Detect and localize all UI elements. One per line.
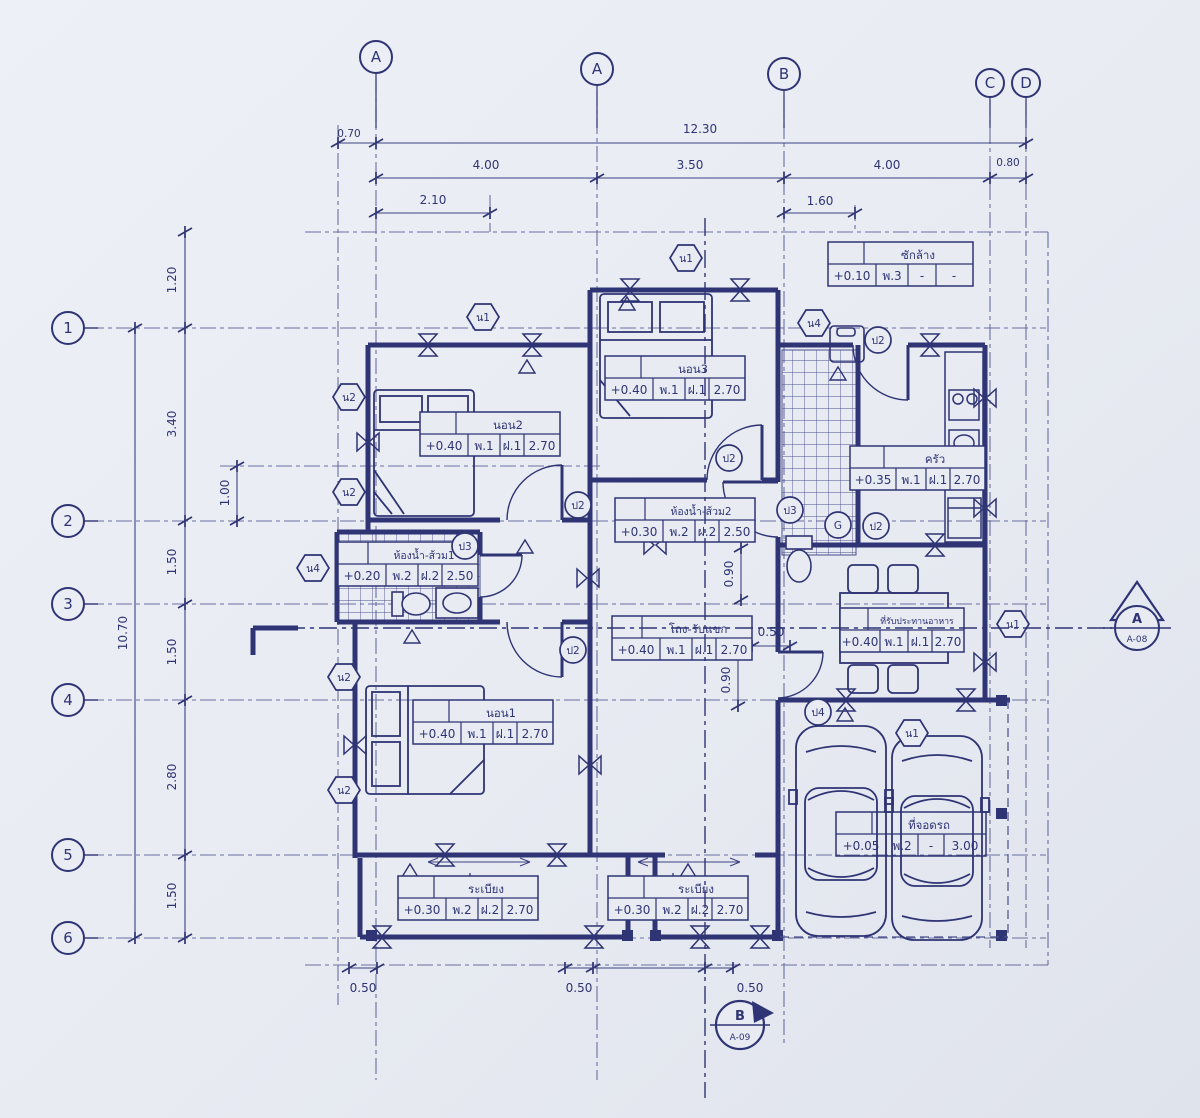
dim-l4: 1.50 — [165, 639, 179, 666]
marker-n2: น2 — [342, 487, 356, 499]
marker-n4: น4 — [807, 318, 821, 330]
room-name: ระเบียง — [678, 882, 714, 896]
marker-g-fixture: G — [834, 520, 842, 532]
room-name: ที่จอดรถ — [908, 817, 950, 832]
col-label-a2: A — [592, 60, 603, 78]
blueprint-page: A A B C D 1 2 3 4 5 6 — [0, 0, 1200, 1118]
room-name: ซักล้าง — [901, 248, 935, 262]
room-ceiling: - — [929, 839, 933, 853]
marker-n2: น2 — [337, 785, 351, 797]
room-name: ห้องน้ำ-ส้วม1 — [393, 548, 454, 562]
room-wall: พ.2 — [392, 569, 411, 583]
dim-top-a: 4.00 — [473, 158, 500, 172]
marker-p3: ป3 — [783, 505, 796, 517]
room-height: 2.70 — [507, 903, 534, 917]
room-wall: พ.2 — [452, 903, 471, 917]
room-level: +0.05 — [843, 839, 880, 853]
room-height: 2.70 — [954, 473, 981, 487]
row-label-4: 4 — [63, 691, 73, 709]
dim-b3: 0.50 — [737, 981, 764, 995]
marker-n2: น2 — [337, 672, 351, 684]
room-height: 2.70 — [714, 383, 741, 397]
dim-b2: 0.50 — [566, 981, 593, 995]
room-name: โถง-รับแขก — [669, 622, 728, 636]
room-label-bedroom2: นอน2 +0.40 พ.1 ฝ.1 2.70 — [420, 412, 560, 456]
room-label-terrace2: ระเบียง +0.30 พ.2 ฝ.2 2.70 — [608, 876, 748, 920]
section-a-letter: A — [1132, 612, 1142, 627]
room-ceiling: ฝ.1 — [929, 473, 947, 487]
row-label-1: 1 — [63, 319, 73, 337]
dim-top-b: 3.50 — [677, 158, 704, 172]
row-label-5: 5 — [63, 846, 73, 864]
col-label-a1: A — [371, 48, 382, 66]
room-height: 2.70 — [522, 727, 549, 741]
room-ceiling: ฝ.1 — [503, 439, 521, 453]
dim-top-d: 0.80 — [996, 157, 1019, 169]
room-ceiling: ฝ.2 — [421, 569, 439, 583]
room-wall: พ.1 — [659, 383, 678, 397]
dim-left-total: 10.70 — [116, 616, 130, 650]
room-name: นอน2 — [493, 418, 523, 432]
room-wall: พ.2 — [892, 839, 911, 853]
section-a-sheet: A-08 — [1127, 635, 1148, 645]
dim-l6: 1.50 — [165, 883, 179, 910]
room-ceiling: ฝ.1 — [496, 727, 514, 741]
dim-l3: 1.50 — [165, 549, 179, 576]
room-level: +0.40 — [842, 635, 879, 649]
room-level: +0.40 — [426, 439, 463, 453]
row-label-6: 6 — [63, 929, 73, 947]
toilet-bath2 — [786, 536, 812, 582]
dim-i090b: 0.90 — [719, 667, 733, 694]
room-ceiling: ฝ.2 — [698, 525, 716, 539]
room-label-laundry: ซักล้าง +0.10 พ.3 - - — [828, 242, 973, 286]
room-label-dining: ที่รับประทานอาหาร +0.40 พ.1 ฝ.1 2.70 — [840, 608, 964, 652]
marker-n1: น1 — [1006, 619, 1020, 631]
dim-l5: 2.80 — [165, 764, 179, 791]
room-wall: พ.1 — [884, 635, 903, 649]
room-wall: พ.1 — [474, 439, 493, 453]
marker-n1: น1 — [905, 728, 919, 740]
floor-plan-drawing: A A B C D 1 2 3 4 5 6 — [0, 0, 1200, 1118]
col-label-d: D — [1020, 74, 1032, 92]
row-label-3: 3 — [63, 595, 73, 613]
room-height: 2.70 — [935, 635, 962, 649]
room-wall: พ.2 — [669, 525, 688, 539]
room-height: 2.50 — [724, 525, 751, 539]
room-height: 2.70 — [529, 439, 556, 453]
room-level: +0.20 — [344, 569, 381, 583]
room-level: +0.40 — [611, 383, 648, 397]
room-level: +0.40 — [618, 643, 655, 657]
room-wall: พ.1 — [901, 473, 920, 487]
room-level: +0.10 — [834, 269, 871, 283]
marker-p3: ป3 — [458, 541, 471, 553]
marker-p2: ป2 — [722, 453, 735, 465]
room-level: +0.35 — [855, 473, 892, 487]
room-name: ห้องน้ำ-ส้วม2 — [670, 504, 731, 518]
dim-l-sub: 1.00 — [218, 480, 232, 507]
dim-l2: 3.40 — [165, 411, 179, 438]
room-name: นอน3 — [678, 362, 708, 376]
room-wall: พ.3 — [882, 269, 901, 283]
marker-p2: ป2 — [571, 500, 584, 512]
room-level: +0.40 — [419, 727, 456, 741]
room-label-kitchen: ครัว +0.35 พ.1 ฝ.1 2.70 — [850, 446, 985, 490]
col-label-c: C — [985, 74, 995, 92]
room-name: ที่รับประทานอาหาร — [880, 615, 954, 627]
room-ceiling: ฝ.2 — [691, 903, 709, 917]
paper-background — [0, 0, 1200, 1118]
room-label-hall: โถง-รับแขก +0.40 พ.1 ฝ.1 2.70 — [612, 616, 752, 660]
room-ceiling: ฝ.1 — [911, 635, 929, 649]
room-name: ระเบียง — [468, 882, 504, 896]
room-wall: พ.1 — [666, 643, 685, 657]
room-height: 2.70 — [717, 903, 744, 917]
marker-p2: ป2 — [869, 521, 882, 533]
room-ceiling: - — [920, 269, 924, 283]
col-label-b: B — [779, 65, 789, 83]
dim-l1: 1.20 — [165, 267, 179, 294]
marker-p2: ป2 — [871, 335, 884, 347]
room-height: 2.70 — [721, 643, 748, 657]
marker-n2: น2 — [342, 392, 356, 404]
room-height: - — [952, 269, 956, 283]
section-b-letter: B — [735, 1009, 745, 1024]
room-level: +0.30 — [621, 525, 658, 539]
marker-p2: ป2 — [566, 645, 579, 657]
room-height: 2.50 — [447, 569, 474, 583]
marker-n1: น1 — [679, 253, 693, 265]
room-wall: พ.1 — [467, 727, 486, 741]
room-wall: พ.2 — [662, 903, 681, 917]
dim-top-c: 4.00 — [874, 158, 901, 172]
marker-n4: น4 — [306, 563, 320, 575]
dim-sub-b: 1.60 — [807, 194, 834, 208]
room-label-bedroom3: นอน3 +0.40 พ.1 ฝ.1 2.70 — [605, 356, 745, 400]
room-name: ครัว — [925, 452, 945, 466]
marker-p4: ป4 — [811, 707, 825, 719]
room-label-bath2: ห้องน้ำ-ส้วม2 +0.30 พ.2 ฝ.2 2.50 — [615, 498, 755, 542]
room-ceiling: ฝ.2 — [481, 903, 499, 917]
dim-sub-a: 2.10 — [420, 193, 447, 207]
marker-n1: น1 — [476, 312, 490, 324]
dim-top-total: 12.30 — [683, 122, 717, 136]
room-ceiling: ฝ.1 — [695, 643, 713, 657]
dim-top-offset: 0.70 — [337, 128, 360, 140]
section-b-sheet: A-09 — [730, 1033, 751, 1043]
row-label-2: 2 — [63, 512, 73, 530]
dim-i090a: 0.90 — [722, 561, 736, 588]
room-ceiling: ฝ.1 — [688, 383, 706, 397]
room-label-bedroom1: นอน1 +0.40 พ.1 ฝ.1 2.70 — [413, 700, 553, 744]
room-height: 3.00 — [952, 839, 979, 853]
room-level: +0.30 — [614, 903, 651, 917]
dim-b1: 0.50 — [350, 981, 377, 995]
room-label-terrace1: ระเบียง +0.30 พ.2 ฝ.2 2.70 — [398, 876, 538, 920]
room-level: +0.30 — [404, 903, 441, 917]
room-name: นอน1 — [486, 706, 516, 720]
